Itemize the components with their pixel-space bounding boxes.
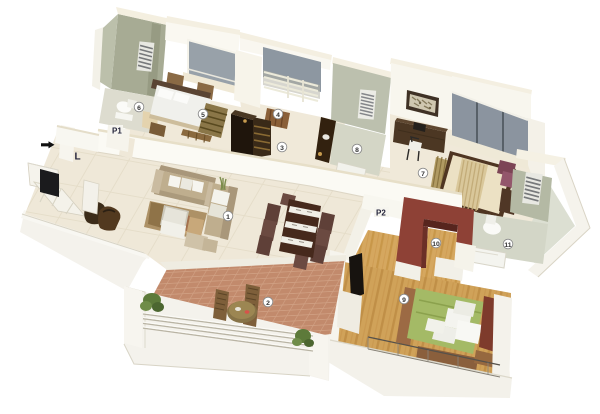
svg-text:8: 8: [355, 147, 359, 154]
svg-text:10: 10: [432, 241, 440, 248]
svg-text:9: 9: [402, 297, 406, 304]
svg-text:1: 1: [226, 214, 230, 221]
svg-text:7: 7: [421, 171, 425, 178]
svg-text:P2: P2: [376, 209, 386, 218]
svg-text:6: 6: [137, 105, 141, 112]
svg-text:P1: P1: [112, 127, 122, 136]
svg-text:2: 2: [266, 300, 270, 307]
svg-text:5: 5: [201, 112, 205, 119]
svg-text:3: 3: [280, 145, 284, 152]
svg-text:11: 11: [504, 242, 511, 249]
svg-text:L: L: [75, 152, 81, 163]
svg-text:4: 4: [276, 112, 280, 119]
